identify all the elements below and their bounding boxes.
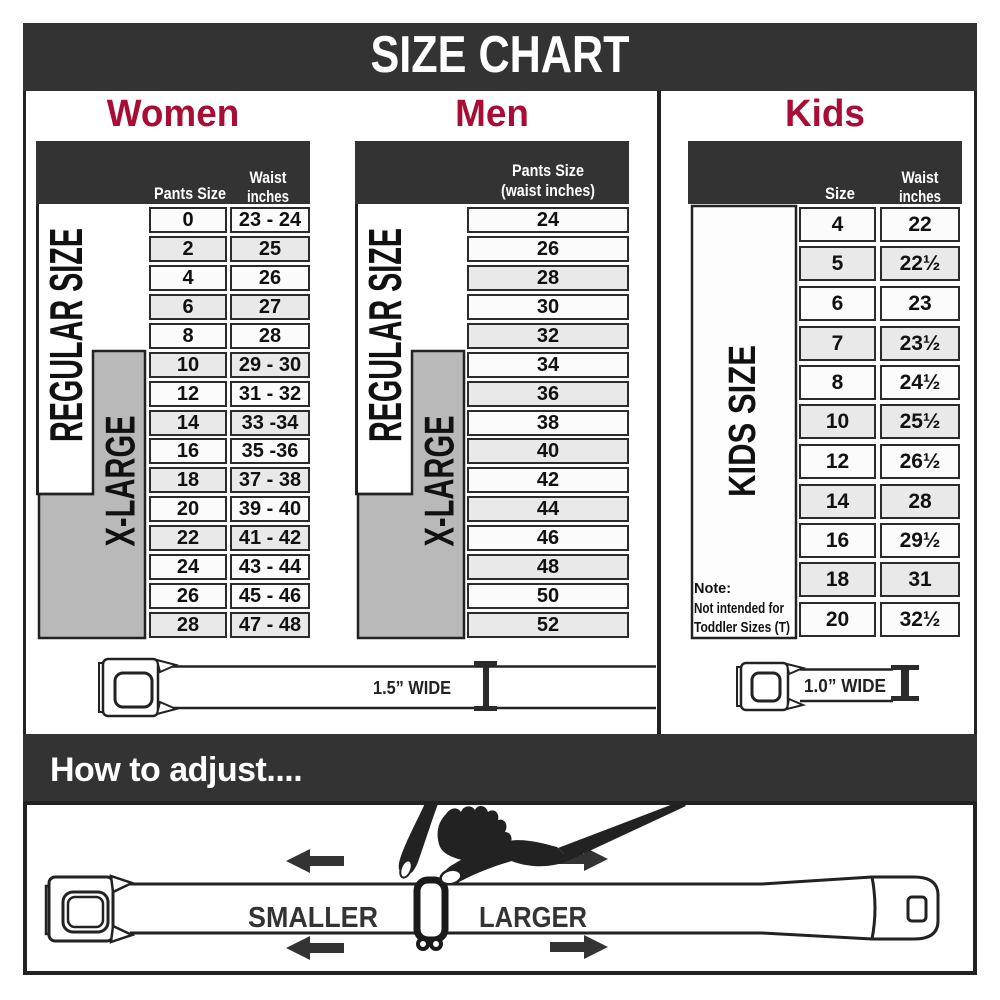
svg-text:SMALLER: SMALLER [248, 902, 378, 934]
svg-text:LARGER: LARGER [479, 902, 587, 934]
